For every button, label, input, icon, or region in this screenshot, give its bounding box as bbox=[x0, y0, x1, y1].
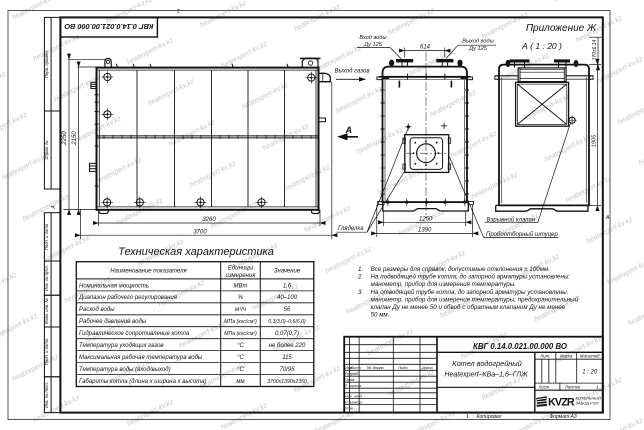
svg-text:°С: °С bbox=[237, 367, 244, 373]
svg-text:клапан Ду не менее 50 и обвод: клапан Ду не менее 50 и обвод с обратным… bbox=[371, 304, 566, 311]
svg-text:КВГ 0.14.0.021.00.000 ВО: КВГ 0.14.0.021.00.000 ВО bbox=[473, 342, 567, 351]
svg-text:Подп. и дата: Подп. и дата bbox=[44, 338, 49, 365]
svg-text:Наименование показателя: Наименование показателя bbox=[110, 269, 187, 275]
svg-text:Расход воды: Расход воды bbox=[79, 307, 115, 313]
svg-text:3700: 3700 bbox=[193, 229, 207, 235]
svg-text:170±6.14: 170±6.14 bbox=[592, 39, 598, 60]
svg-text:1250: 1250 bbox=[419, 216, 433, 222]
svg-text:1: 1 bbox=[177, 7, 180, 13]
svg-text:Пров.: Пров. bbox=[345, 377, 356, 382]
svg-text:МВт: МВт bbox=[234, 283, 248, 289]
svg-text:°С: °С bbox=[237, 355, 244, 361]
svg-text:56: 56 bbox=[284, 307, 291, 313]
svg-text:2150: 2150 bbox=[72, 131, 78, 146]
svg-text:1 : 20: 1 : 20 bbox=[582, 370, 598, 376]
svg-text:ЗАВОД РЭП: ЗАВОД РЭП bbox=[576, 401, 599, 406]
svg-text:КВГ 0.14.0.021.00.000 ВО: КВГ 0.14.0.021.00.000 ВО bbox=[64, 22, 153, 31]
svg-text:Взам. инв. №: Взам. инв. № bbox=[44, 298, 49, 324]
svg-text:0,07(0,7): 0,07(0,7) bbox=[275, 331, 299, 337]
svg-text:Перв. примен.: Перв. примен. bbox=[44, 50, 49, 78]
svg-text:Масса: Масса bbox=[560, 353, 573, 358]
svg-text:Листов: Листов bbox=[564, 385, 581, 390]
svg-text:измерения: измерения bbox=[225, 273, 256, 279]
svg-text:3.: 3. bbox=[358, 289, 363, 296]
svg-text:манометр, прибор для измерения: манометр, прибор для измерения температу… bbox=[371, 296, 579, 303]
svg-text:1,6: 1,6 bbox=[283, 283, 292, 289]
svg-text:°С: °С bbox=[237, 343, 244, 349]
svg-text:KVZR: KVZR bbox=[548, 397, 575, 409]
svg-text:%: % bbox=[238, 295, 244, 301]
svg-text:115: 115 bbox=[282, 355, 292, 361]
svg-text:2.: 2. bbox=[357, 274, 363, 281]
svg-text:Температура уходящих газов: Температура уходящих газов bbox=[79, 343, 164, 349]
svg-text:А: А bbox=[51, 205, 57, 210]
svg-text:На отводящей трубе котла, до з: На отводящей трубе котла, до запорной ар… bbox=[371, 289, 569, 296]
svg-text:50 мм.: 50 мм. bbox=[371, 311, 390, 318]
svg-text:2250: 2250 bbox=[62, 131, 68, 146]
svg-text:Формат А3: Формат А3 bbox=[549, 414, 577, 420]
svg-text:1905: 1905 bbox=[591, 134, 597, 147]
svg-text:Инв. № дубл.: Инв. № дубл. bbox=[44, 265, 49, 291]
svg-text:Габариты котла (длина х ширина: Габариты котла (длина х ширина х высота) bbox=[79, 379, 206, 385]
svg-text:м³/ч: м³/ч bbox=[235, 307, 246, 313]
svg-text:Выход газов: Выход газов bbox=[335, 69, 370, 75]
svg-text:Максимальная рабочая температу: Максимальная рабочая температура воды bbox=[79, 355, 203, 361]
svg-text:Утв.: Утв. bbox=[345, 405, 354, 410]
svg-text:Дата: Дата bbox=[421, 365, 433, 370]
svg-text:Вход воды: Вход воды bbox=[359, 35, 386, 41]
svg-text:Гидравлическое сопротивление к: Гидравлическое сопротивление котла bbox=[79, 331, 190, 337]
svg-text:А: А bbox=[345, 125, 353, 135]
svg-text:Котел водогрейный: Котел водогрейный bbox=[452, 359, 521, 368]
svg-text:1: 1 bbox=[466, 414, 469, 420]
svg-text:1390: 1390 bbox=[418, 227, 432, 233]
svg-text:1.: 1. bbox=[358, 266, 363, 273]
svg-text:Техническая характеристика: Техническая характеристика bbox=[118, 246, 274, 258]
svg-text:Копировал: Копировал bbox=[477, 414, 502, 420]
svg-text:Лист: Лист bbox=[538, 385, 550, 390]
svg-text:Инв. № подл.: Инв. № подл. bbox=[44, 382, 49, 408]
svg-text:Лит.: Лит. bbox=[539, 353, 550, 358]
svg-text:Ду 125: Ду 125 bbox=[363, 42, 383, 48]
svg-text:А: А bbox=[605, 215, 610, 221]
svg-text:Температура воды (вход/выход): Температура воды (вход/выход) bbox=[79, 367, 171, 373]
svg-text:Heatexpert–КВа–1,6–ГЛЖ: Heatexpert–КВа–1,6–ГЛЖ bbox=[444, 372, 528, 379]
svg-text:МПа (кгс/см²): МПа (кгс/см²) bbox=[224, 331, 257, 337]
svg-text:40–100: 40–100 bbox=[277, 295, 298, 301]
svg-text:МПа (кгс/см²): МПа (кгс/см²) bbox=[224, 319, 257, 325]
svg-text:1: 1 bbox=[596, 385, 598, 390]
svg-text:мм: мм bbox=[236, 379, 244, 385]
svg-text:Лист: Лист bbox=[349, 365, 361, 370]
svg-text:Справ. №: Справ. № bbox=[44, 140, 49, 159]
svg-text:Приложение Ж: Приложение Ж bbox=[526, 23, 597, 34]
svg-text:Значение: Значение bbox=[274, 269, 301, 275]
svg-text:Выход воды: Выход воды bbox=[462, 38, 493, 44]
svg-text:Ду 125: Ду 125 bbox=[468, 46, 488, 52]
svg-text:манометр, прибор для измерения: манометр, прибор для измерения температу… bbox=[371, 281, 516, 288]
svg-text:Т. контр.: Т. контр. bbox=[345, 383, 362, 388]
svg-text:На подводящей трубе котла, до: На подводящей трубе котла, до запорной а… bbox=[371, 274, 571, 281]
svg-text:Гляделка: Гляделка bbox=[338, 226, 364, 232]
svg-text:Нач. отд.: Нач. отд. bbox=[345, 394, 363, 399]
svg-text:Масштаб: Масштаб bbox=[580, 353, 600, 358]
svg-text:Все размеры для справок, допус: Все размеры для справок, допустимые откл… bbox=[371, 266, 550, 273]
svg-text:614: 614 bbox=[420, 45, 431, 51]
svg-text:А ( 1 : 20 ): А ( 1 : 20 ) bbox=[521, 41, 562, 51]
svg-text:Подп. и дата: Подп. и дата bbox=[44, 223, 49, 250]
svg-text:Единицы: Единицы bbox=[228, 266, 254, 272]
svg-text:Диапазон рабочего регулировани: Диапазон рабочего регулирования bbox=[78, 295, 178, 301]
svg-text:0,3(3,0)–0,6(6,0): 0,3(3,0)–0,6(6,0) bbox=[268, 319, 306, 325]
svg-text:3700х1390х2350: 3700х1390х2350 bbox=[267, 379, 307, 385]
svg-text:не более 220: не более 220 bbox=[269, 343, 306, 349]
svg-text:Рабочее давление воды: Рабочее давление воды bbox=[79, 319, 147, 325]
svg-text:Н. контр.: Н. контр. bbox=[345, 399, 363, 404]
svg-text:№ докум.: № докум. bbox=[367, 365, 385, 370]
svg-text:Разраб.: Разраб. bbox=[345, 371, 359, 376]
svg-text:3260: 3260 bbox=[202, 217, 216, 223]
svg-text:70/95: 70/95 bbox=[279, 367, 295, 373]
svg-text:Номинальная мощность: Номинальная мощность bbox=[79, 283, 149, 289]
svg-text:Подп.: Подп. bbox=[398, 365, 409, 370]
